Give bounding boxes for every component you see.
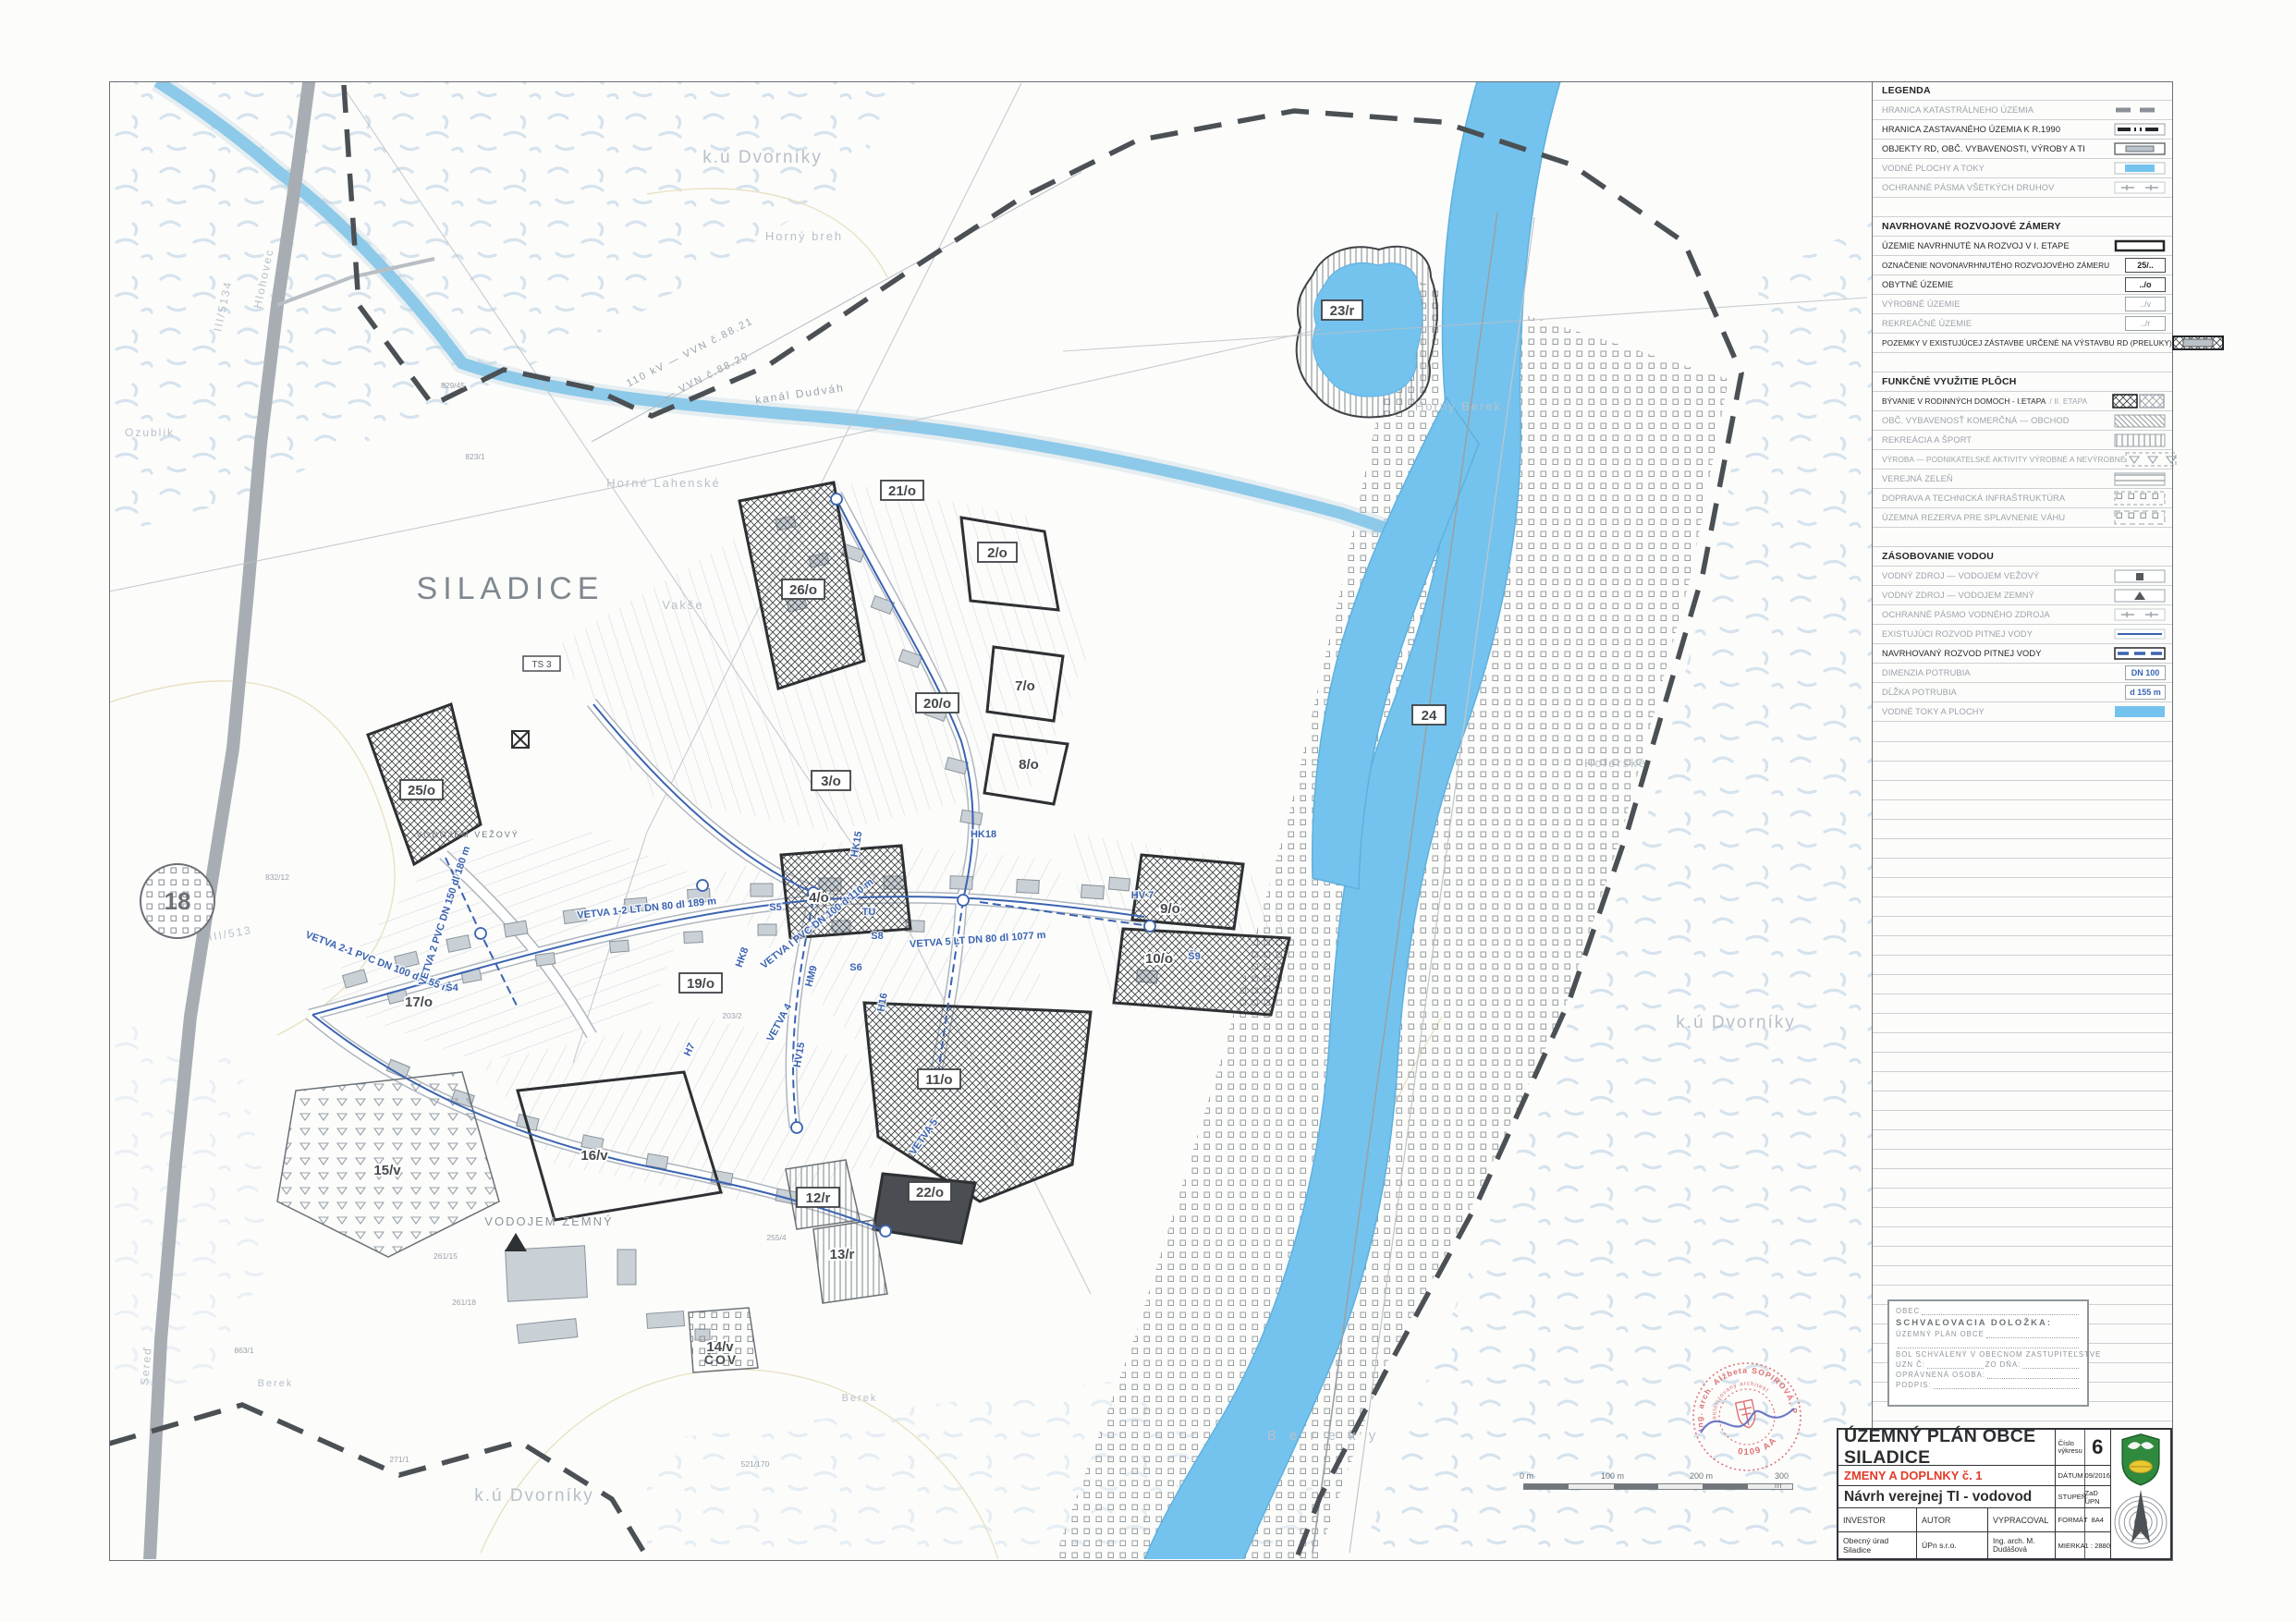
coat-of-arms — [2119, 1432, 2162, 1486]
svg-text:S5: S5 — [769, 902, 781, 913]
legend-item: OBČ. VYBAVENOSŤ KOMERČNÁ — OBCHOD — [1882, 416, 2070, 425]
svg-text:203/2: 203/2 — [722, 1011, 742, 1020]
svg-text:Ozublik: Ozublik — [125, 426, 175, 439]
swatch-proposed-pipe — [2114, 647, 2166, 660]
investor-value: Obecný úrad Siladice — [1838, 1532, 1916, 1558]
road-number-circle: 18 — [140, 864, 214, 938]
svg-text:9/o: 9/o — [1160, 901, 1180, 917]
plan-sheet: 18 — [0, 0, 2296, 1622]
svg-text:VODOJEM VEŽOVÝ: VODOJEM VEŽOVÝ — [416, 830, 519, 839]
swatch-builtup-boundary — [2114, 123, 2166, 136]
svg-text:14/v: 14/v — [706, 1339, 734, 1355]
svg-text:0109 AA: 0109 AA — [1734, 1433, 1781, 1460]
svg-text:24: 24 — [1422, 708, 1437, 724]
svg-text:521/170: 521/170 — [741, 1459, 770, 1469]
approval-line: ÚZEMNÝ PLÁN OBCE — [1896, 1330, 1985, 1338]
svg-text:823/1: 823/1 — [465, 452, 485, 461]
date-label: DÁTUM — [2056, 1466, 2085, 1485]
swatch-buildings — [2114, 142, 2166, 155]
format-label: FORMÁT — [2056, 1508, 2085, 1531]
svg-text:B e r e k y: B e r e k y — [1267, 1428, 1381, 1444]
format-value: 8A4 — [2085, 1508, 2110, 1531]
swatch-stage1-territory — [2114, 239, 2166, 252]
swatch-water-areas — [2114, 162, 2166, 175]
svg-text:15/v: 15/v — [373, 1163, 401, 1178]
swatch-greenery — [2114, 472, 2166, 486]
legend-item: OBYTNÉ ÚZEMIE — [1882, 280, 1953, 289]
plan-title: ÚZEMNÝ PLÁN OBCE SILADICE — [1838, 1430, 2055, 1466]
swatch-cadastral-boundary — [2114, 105, 2166, 115]
svg-text:HV 7: HV 7 — [1131, 890, 1154, 901]
road-number-label: 18 — [165, 887, 191, 915]
legend-item: HRANICA KATASTRÁLNEHO ÚZEMIA — [1882, 105, 2033, 115]
svg-text:HK18: HK18 — [971, 829, 996, 840]
legend-item: NAVRHOVANÝ ROZVOD PITNEJ VODY — [1882, 649, 2042, 658]
svg-text:Horný Berek: Horný Berek — [1415, 399, 1502, 413]
legend-item: VÝROBNÉ ÚZEMIE — [1882, 299, 1960, 309]
swatch-watercourses — [2114, 705, 2166, 718]
drawing-number: 6 — [2085, 1430, 2110, 1465]
approval-obec-label: OBEC — [1896, 1307, 1920, 1315]
swatch-tower-reservoir — [2114, 569, 2166, 583]
legend-item: ÚZEMNÁ REZERVA PRE SPLAVNENIE VÁHU — [1882, 513, 2065, 522]
stage-value: ZaD ÚPN — [2085, 1486, 2110, 1507]
legend-item: HRANICA ZASTAVANÉHO ÚZEMIA K R.1990 — [1882, 125, 2060, 134]
approval-box: OBEC SCHVAĽOVACIA DOLOŽKA: ÚZEMNÝ PLÁN O… — [1887, 1299, 2089, 1407]
village-name: SILADICE — [417, 571, 605, 606]
swatch-pipe-dimension: DN 100 — [2125, 665, 2166, 680]
svg-text:Hoferské: Hoferské — [1584, 756, 1647, 770]
legend-item: VEREJNÁ ZELEŇ — [1882, 474, 1953, 483]
svg-text:20/o: 20/o — [923, 696, 951, 712]
swatch-ground-reservoir — [2114, 589, 2166, 603]
legend-item: REKREAČNÉ ÚZEMIE — [1882, 319, 1972, 328]
svg-text:4/o: 4/o — [809, 890, 829, 906]
north-compass-icon — [2111, 1486, 2170, 1558]
svg-text:12/r: 12/r — [806, 1190, 831, 1206]
svg-text:13/r: 13/r — [830, 1247, 855, 1262]
swatch-vah-reserve — [2114, 510, 2166, 525]
svg-text:Horný breh: Horný breh — [765, 229, 843, 243]
svg-text:10/o: 10/o — [1145, 951, 1173, 967]
legend-item: VODNÝ ZDROJ — VODOJEM ZEMNÝ — [1882, 591, 2034, 600]
svg-text:261/18: 261/18 — [452, 1298, 476, 1307]
swatch-protection-zones — [2114, 181, 2166, 194]
stamp-number: 0109 AA — [1734, 1433, 1781, 1460]
autor-label: AUTOR — [1916, 1508, 1987, 1531]
swatch-existing-pipe — [2114, 628, 2166, 640]
swatch-sport — [2114, 433, 2166, 447]
svg-text:kanál Dudváh: kanál Dudváh — [754, 381, 845, 406]
ts-box: TS 3 — [523, 656, 560, 671]
scale-label-0: 0 m — [1520, 1471, 1533, 1481]
svg-text:8/o: 8/o — [1019, 757, 1039, 773]
swatch-housing — [2112, 394, 2166, 409]
drawing-name: Návrh verejnej TI - vodovod — [1838, 1486, 2055, 1508]
swatch-recreation-code: ../r — [2125, 316, 2166, 331]
legend-item: OCHRANNÉ PÁSMO VODNÉHO ZDROJA — [1882, 610, 2050, 619]
svg-text:21/o: 21/o — [888, 483, 916, 499]
swatch-production — [2125, 452, 2177, 467]
scale-label-100: 100 m — [1601, 1471, 1624, 1481]
svg-text:Horné Lahenské: Horné Lahenské — [606, 476, 720, 490]
swatch-source-protection — [2114, 608, 2166, 621]
legend-item: EXISTUJÚCI ROZVOD PITNEJ VODY — [1882, 629, 2033, 639]
swatch-residential-code: ../o — [2125, 277, 2166, 292]
legend-item: VODNÉ PLOCHY A TOKY — [1882, 164, 1985, 173]
swatch-production-code: ../v — [2125, 297, 2166, 311]
legend-section-header: NAVRHOVANÉ ROZVOJOVÉ ZÁMERY — [1882, 221, 2061, 232]
svg-text:829/45: 829/45 — [441, 381, 465, 390]
scale-value: 1 : 2880 — [2085, 1532, 2110, 1558]
title-block: ÚZEMNÝ PLÁN OBCE SILADICE ZMENY A DOPLNK… — [1837, 1428, 2172, 1560]
svg-text:17/o: 17/o — [405, 994, 433, 1010]
legend-title: LEGENDA — [1882, 85, 1931, 96]
svg-text:863/1: 863/1 — [234, 1346, 254, 1355]
approval-signature-label: PODPIS: — [1896, 1381, 1932, 1389]
pond — [1297, 247, 1437, 418]
architect-stamp: Ing. arch. Alžbeta SOPIROVÁ, PhD. autori… — [1678, 1348, 1816, 1486]
svg-text:26/o: 26/o — [789, 582, 817, 598]
svg-text:TS 3: TS 3 — [531, 660, 552, 670]
legend-section-header: FUNKČNÉ VYUŽITIE PLÔCH — [1882, 376, 2017, 387]
legend-item: REKREÁCIA A ŠPORT — [1882, 435, 1972, 445]
svg-text:Berek: Berek — [258, 1378, 294, 1389]
svg-text:TU: TU — [862, 907, 876, 918]
legend-section-header: ZÁSOBOVANIE VODOU — [1882, 551, 1994, 562]
svg-text:VODOJEM ZEMNÝ: VODOJEM ZEMNÝ — [484, 1214, 613, 1228]
swatch-transport-infra — [2114, 491, 2166, 506]
svg-text:S8: S8 — [871, 931, 883, 942]
svg-text:Vakše: Vakše — [662, 598, 703, 612]
approval-date-label: ZO DŇA: — [1985, 1360, 2021, 1369]
legend-item: DĹŽKA POTRUBIA — [1882, 688, 1957, 697]
ground-reservoir-icon — [505, 1233, 527, 1251]
autor-value: ÚPn s.r.o. — [1916, 1532, 1987, 1558]
investor-label: INVESTOR — [1838, 1508, 1916, 1531]
svg-text:832/12: 832/12 — [265, 872, 289, 882]
svg-text:Berek: Berek — [842, 1393, 878, 1404]
svg-text:2/o: 2/o — [987, 545, 1008, 561]
approval-line: BOL SCHVÁLENÝ V OBECNOM ZASTUPITEĽSTVE — [1896, 1350, 2101, 1359]
approval-uzn-label: UZN Č: — [1896, 1360, 1925, 1369]
legend-item: VODNÉ TOKY A PLOCHY — [1882, 707, 1985, 716]
svg-text:k.ú Dvorníky: k.ú Dvorníky — [1676, 1013, 1796, 1032]
svg-text:S6: S6 — [849, 962, 861, 973]
svg-text:25/o: 25/o — [408, 783, 435, 799]
stage-label: STUPEŇ — [2056, 1486, 2085, 1507]
scale-label: MIERKA — [2056, 1532, 2085, 1558]
legend-item: VÝROBA — PODNIKATELSKÉ AKTIVITY VÝROBNÉ … — [1882, 455, 2125, 464]
svg-text:255/4: 255/4 — [766, 1233, 787, 1242]
svg-text:HK8: HK8 — [734, 946, 751, 970]
tower-reservoir-icon — [512, 731, 529, 748]
legend-panel: LEGENDA HRANICA KATASTRÁLNEHO ÚZEMIA HRA… — [1872, 81, 2172, 1559]
svg-text:23/r: 23/r — [1330, 303, 1355, 319]
approval-person-label: OPRÁVNENÁ OSOBA: — [1896, 1371, 1985, 1379]
legend-item: DIMENZIA POTRUBIA — [1882, 668, 1971, 677]
svg-text:11/o: 11/o — [925, 1072, 952, 1088]
legend-item: POZEMKY V EXISTUJÚCEJ ZÁSTAVBE URČENÉ NA… — [1882, 338, 2172, 348]
vypracoval-value: Ing. arch. M. Dudášová — [1987, 1532, 2055, 1558]
svg-text:k.ú Dvorníky: k.ú Dvorníky — [702, 148, 823, 167]
svg-text:271/1: 271/1 — [389, 1455, 409, 1464]
vypracoval-label: VYPRACOVAL — [1987, 1508, 2055, 1531]
legend-item: VODNÝ ZDROJ — VODOJEM VEŽOVÝ — [1882, 571, 2039, 580]
svg-text:16/v: 16/v — [580, 1148, 608, 1164]
swatch-plot-code: 25/.. — [2125, 258, 2166, 273]
swatch-commerce — [2114, 414, 2166, 428]
swatch-pipe-length: d 155 m — [2125, 685, 2166, 700]
svg-text:3/o: 3/o — [821, 774, 841, 789]
svg-text:19/o: 19/o — [687, 976, 714, 992]
svg-text:k.ú Dvorníky: k.ú Dvorníky — [474, 1486, 594, 1506]
svg-text:261/15: 261/15 — [434, 1251, 458, 1261]
legend-item: BÝVANIE V RODINNÝCH DOMOCH - I.ETAPA — [1882, 396, 2046, 406]
svg-text:III/513: III/513 — [208, 923, 253, 944]
svg-text:Š4: Š4 — [446, 982, 458, 994]
legend-item: OCHRANNÉ PÁSMA VŠETKÝCH DRUHOV — [1882, 183, 2054, 192]
svg-text:Š9: Š9 — [1188, 950, 1200, 962]
legend-item: OZNAČENIE NOVONAVRHNUTÉHO ROZVOJOVÉHO ZÁ… — [1882, 261, 2109, 270]
swatch-preluky — [2172, 335, 2224, 350]
svg-text:22/o: 22/o — [916, 1185, 944, 1201]
date-value: 09/2016 — [2085, 1466, 2110, 1485]
drawing-number-label: Číslo výkresu — [2056, 1430, 2085, 1465]
legend-item: DOPRAVA A TECHNICKÁ INFRAŠTRUKTÚRA — [1882, 494, 2065, 503]
legend-item: OBJEKTY RD, OBČ. VYBAVENOSTI, VÝROBY A T… — [1882, 144, 2085, 153]
plan-subtitle: ZMENY A DOPLNKY č. 1 — [1838, 1466, 2055, 1486]
legend-item: ÚZEMIE NAVRHNUTÉ NA ROZVOJ V I. ETAPE — [1882, 241, 2070, 250]
approval-title: SCHVAĽOVACIA DOLOŽKA: — [1896, 1318, 2081, 1328]
svg-text:7/o: 7/o — [1015, 678, 1035, 694]
